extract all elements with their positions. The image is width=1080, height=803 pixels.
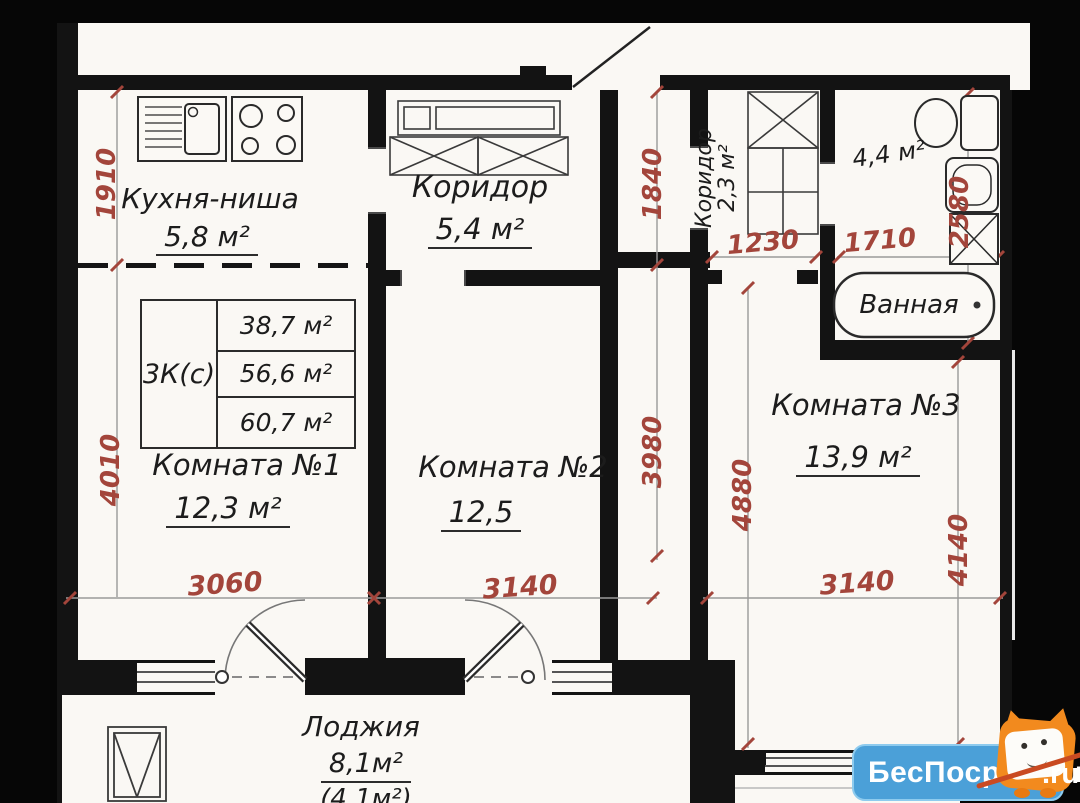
area-loggia: 8,1м²	[321, 750, 411, 783]
area-apartment: 56,6 м²	[218, 350, 354, 399]
area-hall-main: 5,4 м²	[428, 214, 533, 249]
label-room1: Комната №1	[117, 450, 377, 480]
area-room3: 13,9 м²	[796, 442, 919, 477]
area-living: 38,7 м²	[218, 301, 354, 350]
dim-4880: 4880	[728, 440, 756, 550]
area-total: 60,7 м²	[218, 398, 354, 447]
dim-2580: 2580	[945, 162, 971, 262]
owl-eye	[1041, 739, 1048, 746]
dim-4010: 4010	[96, 425, 124, 515]
door-swing-icon	[216, 600, 305, 683]
watermark-tld: .ru	[1042, 758, 1079, 791]
window-icon	[108, 727, 166, 801]
apartment-type-code: 3К(с)	[142, 301, 218, 447]
area-room1: 12,3 м²	[166, 493, 289, 528]
wardrobe-icon	[390, 101, 568, 175]
dim-1910: 1910	[92, 139, 120, 229]
label-kitchen: Кухня-ниша	[90, 184, 330, 213]
floor-plan-canvas: 3К(с) 38,7 м² 56,6 м² 60,7 м² Кухня-ниша…	[0, 0, 1080, 803]
label-room2: Комната №2	[373, 452, 653, 482]
owl-foot	[1014, 788, 1030, 798]
stove-icon	[232, 97, 302, 161]
label-hall-main: Коридор	[380, 172, 580, 204]
label-loggia: Лоджия	[281, 712, 441, 741]
area-loggia-secondary: (4,1м²)	[301, 786, 431, 803]
dim-1840: 1840	[638, 139, 666, 229]
area-kitchen: 5,8 м²	[156, 222, 258, 256]
area-room2: 12,5	[441, 497, 522, 532]
label-bathroom: Ванная	[844, 292, 974, 319]
dim-4140: 4140	[944, 495, 972, 605]
owl-eye	[1021, 743, 1028, 750]
dim-3980: 3980	[638, 407, 666, 497]
apartment-summary-table: 3К(с) 38,7 м² 56,6 м² 60,7 м²	[140, 299, 356, 449]
kitchen-sink-icon	[138, 97, 226, 161]
entrance-door-leaf	[573, 27, 650, 87]
label-room3: Комната №3	[726, 390, 1006, 420]
door-swing-icon	[465, 600, 545, 683]
